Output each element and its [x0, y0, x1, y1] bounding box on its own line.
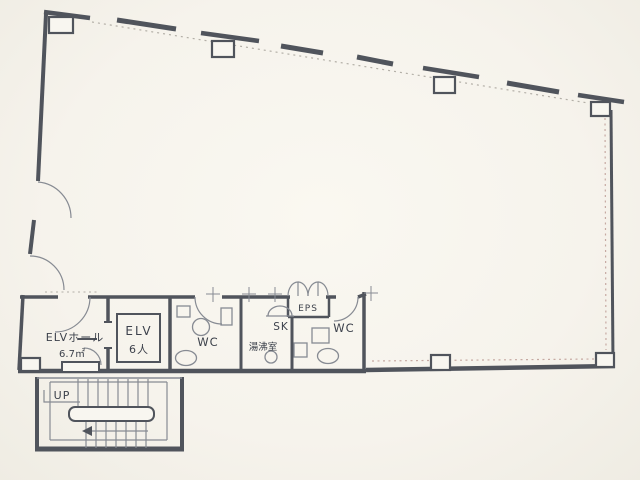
column-icon	[49, 17, 73, 33]
kitchenette-label: 湯沸室	[249, 341, 278, 353]
slop-sink-label: SK	[273, 321, 289, 333]
door-swing-icon	[195, 297, 222, 324]
left-wall	[30, 14, 71, 290]
eps-door-leaf-icon	[318, 282, 328, 296]
door-swings	[55, 282, 378, 365]
door-swing-icon	[55, 297, 90, 332]
elv-hall: ELVホール 6.7㎡	[46, 331, 104, 360]
top-boundary	[44, 12, 624, 116]
eps-door-leaf-icon	[298, 282, 308, 296]
door-swing-icon	[334, 297, 358, 321]
wc-right-label: WC	[333, 321, 354, 335]
door-swing-icon	[30, 256, 64, 290]
stair-arrow-icon	[82, 426, 92, 436]
elevator-capacity-label: 6人	[129, 343, 149, 356]
right-wall	[605, 110, 613, 362]
bottom-wall	[366, 353, 615, 370]
stairs-up-label: UP	[54, 389, 71, 402]
threshold-icon	[62, 362, 99, 372]
wall-cap	[423, 68, 479, 77]
floor-plan-canvas: ELV 6人 ELVホール 6.7㎡ WC SK 湯沸室 EPS WC	[0, 0, 640, 480]
column-icon	[434, 77, 455, 93]
eps-door-leaf-icon	[308, 282, 318, 296]
toilet-icon	[176, 351, 197, 366]
counter-icon	[294, 343, 307, 357]
column-icon	[431, 355, 450, 370]
kitchenette: SK 湯沸室	[249, 306, 307, 363]
boundary-dotted-guide	[92, 22, 588, 103]
door-jamb-ticks	[206, 286, 378, 302]
construction-dotted-line	[605, 118, 606, 350]
elv-hall-label: ELVホール	[46, 331, 104, 344]
wc-left: WC	[176, 306, 233, 366]
boundary-dash	[281, 46, 323, 53]
sink-icon	[193, 319, 210, 336]
floor-plan-page: ELV 6人 ELVホール 6.7㎡ WC SK 湯沸室 EPS WC	[0, 0, 640, 480]
stair-treads-lower	[86, 421, 146, 448]
shelf-icon	[312, 328, 329, 343]
column-icon	[21, 358, 40, 371]
stair-treads-upper	[78, 379, 148, 408]
construction-dotted-line	[372, 359, 594, 361]
eps-label: EPS	[298, 304, 318, 314]
wall	[38, 14, 46, 181]
eps-door-leaf-icon	[288, 282, 298, 296]
stair-landing-rail	[69, 407, 154, 421]
column-icon	[212, 41, 234, 57]
boundary-dash	[357, 57, 393, 64]
wall	[611, 110, 613, 362]
toilet-icon	[318, 349, 339, 364]
door-swing-icon	[38, 182, 71, 218]
cistern-icon	[221, 308, 232, 325]
wall-cap	[201, 33, 259, 41]
wc-right: WC	[312, 321, 355, 364]
boundary-dash	[117, 20, 176, 29]
eps-closet: EPS	[298, 304, 318, 314]
wc-left-label: WC	[197, 335, 218, 349]
elevator-label: ELV	[125, 324, 152, 338]
column-icon	[591, 102, 610, 116]
column-icon	[596, 353, 614, 367]
shelf-icon	[177, 306, 190, 317]
elv-hall-area-label: 6.7㎡	[59, 348, 85, 360]
wall	[30, 220, 34, 254]
boundary-dash	[507, 83, 559, 92]
wall	[366, 366, 615, 370]
